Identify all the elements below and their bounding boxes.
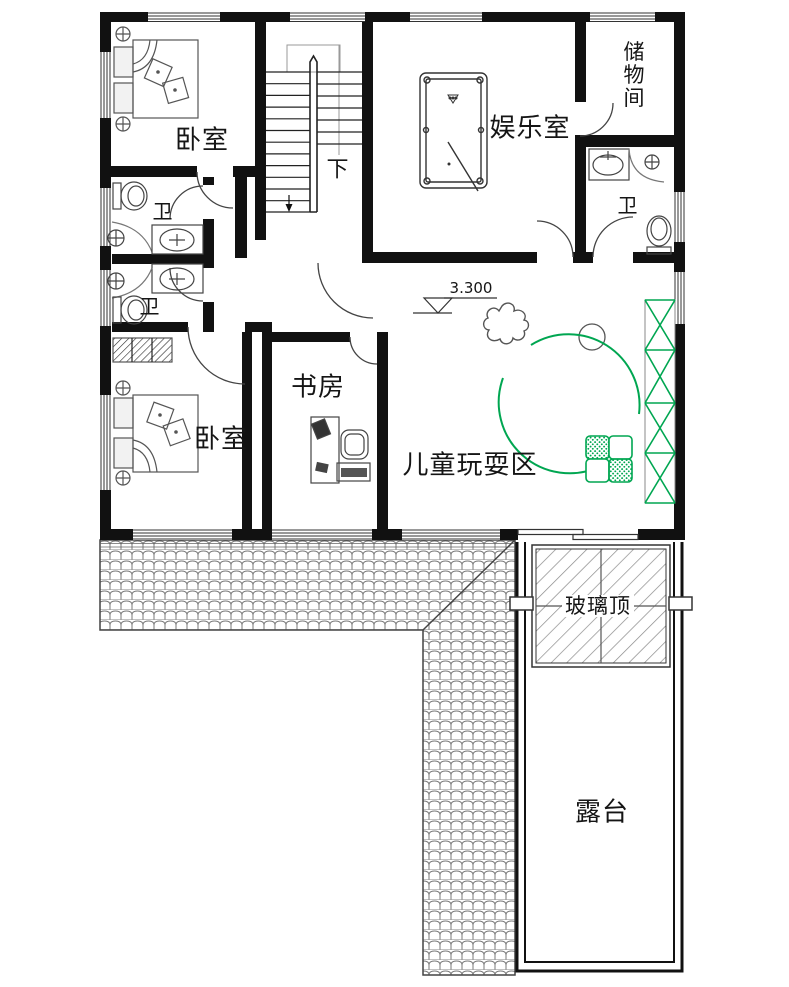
door-study <box>350 337 377 364</box>
floor-plan: 卧室 娱乐室 储物间 卫 卫 卫 卧室 书房 儿童玩耍区 玻璃顶 露台 下 3.… <box>0 0 789 987</box>
elevation-label: 3.300 <box>450 281 493 297</box>
elevation-marker <box>413 298 497 313</box>
door-entertainment <box>537 221 573 257</box>
room-label-storage: 储物间 <box>622 41 644 110</box>
door-bedroom-top <box>197 172 233 208</box>
door-hall <box>318 263 373 318</box>
study-desk <box>311 417 370 483</box>
door-bath-left-upper <box>170 186 203 219</box>
toilet-tank <box>113 297 121 323</box>
room-label-bath-left-upper: 卫 <box>153 202 174 223</box>
closet <box>113 338 172 362</box>
room-label-terrace: 露台 <box>575 799 629 826</box>
room-label-study: 书房 <box>291 374 345 401</box>
sliding-door <box>518 530 638 540</box>
bed-bottom <box>113 338 198 485</box>
room-label-play-area: 儿童玩耍区 <box>402 452 537 479</box>
desk-lamp <box>312 419 331 439</box>
glass-roof-support-right <box>669 597 692 610</box>
room-label-bath-left-lower: 卫 <box>140 297 161 318</box>
green-lattice-shelf <box>645 300 675 503</box>
stair-stringer <box>310 56 317 212</box>
stairs <box>266 45 362 212</box>
pool-cue <box>448 142 478 191</box>
room-label-glass-roof: 玻璃顶 <box>562 595 634 617</box>
room-label-bedroom-top: 卧室 <box>175 127 229 154</box>
room-label-entertainment: 娱乐室 <box>489 115 570 142</box>
glass-roof-support-left <box>510 597 533 610</box>
play-circle <box>579 324 605 350</box>
toilet-tank <box>113 183 121 209</box>
door-bedroom-bottom <box>188 327 245 384</box>
room-label-bedroom-bottom: 卧室 <box>194 426 248 453</box>
door-bath-right <box>593 217 633 257</box>
floor-plan-drawing <box>0 0 789 987</box>
stairs-direction-label: 下 <box>326 158 349 181</box>
room-label-bath-right: 卫 <box>618 196 639 217</box>
door-bath-left-lower <box>170 268 203 301</box>
door-storage <box>580 103 613 136</box>
bed-top <box>114 27 198 131</box>
toy-shape <box>484 303 529 344</box>
pool-table <box>420 73 487 191</box>
tile-roof <box>100 540 515 975</box>
play-mat <box>586 436 632 482</box>
stair-arrow <box>286 195 293 212</box>
